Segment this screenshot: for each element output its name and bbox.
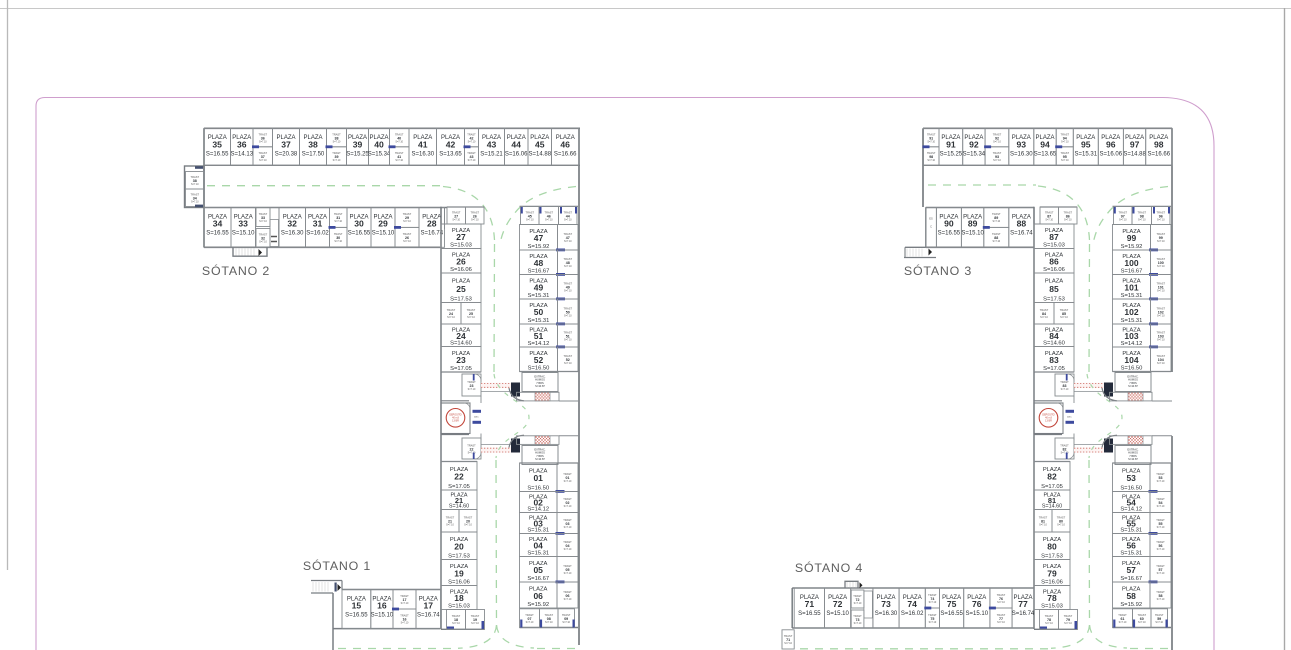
svg-text:79: 79	[1047, 568, 1057, 578]
svg-text:S=15.31: S=15.31	[1120, 551, 1142, 557]
svg-text:S=7.10: S=7.10	[1157, 572, 1165, 575]
svg-text:S=7.10: S=7.10	[1061, 451, 1069, 454]
svg-text:S=15.10: S=15.10	[961, 231, 984, 237]
svg-text:46: 46	[560, 139, 570, 149]
svg-text:S=14.12: S=14.12	[1121, 341, 1143, 347]
svg-text:72: 72	[833, 599, 843, 609]
svg-text:82: 82	[1047, 472, 1057, 482]
svg-text:36: 36	[237, 139, 247, 149]
svg-text:58: 58	[1126, 591, 1136, 601]
svg-text:S=7.10: S=7.10	[1157, 290, 1165, 293]
svg-text:S=17.05: S=17.05	[450, 366, 472, 372]
svg-text:24: 24	[456, 331, 466, 341]
svg-text:S=7.10: S=7.10	[464, 524, 472, 527]
svg-text:42: 42	[446, 139, 456, 149]
svg-text:S=17.05: S=17.05	[448, 484, 470, 490]
svg-text:S=14.60: S=14.60	[450, 341, 472, 347]
svg-text:73: 73	[881, 599, 891, 609]
svg-text:S=16.55: S=16.55	[798, 611, 821, 617]
svg-text:S=16.55: S=16.55	[345, 613, 368, 619]
svg-text:S=7.10: S=7.10	[447, 316, 455, 319]
svg-text:S=7.10: S=7.10	[992, 220, 1000, 223]
svg-text:S=7.10: S=7.10	[468, 140, 476, 143]
svg-text:04: 04	[533, 541, 543, 551]
svg-text:ASC: ASC	[1067, 416, 1072, 419]
svg-text:33: 33	[238, 219, 248, 229]
svg-text:S=7.10: S=7.10	[1157, 526, 1165, 529]
svg-text:47: 47	[534, 233, 544, 243]
svg-text:S=7.10: S=7.10	[927, 159, 935, 162]
svg-text:S=7.10: S=7.10	[564, 526, 572, 529]
svg-text:S=16.66: S=16.66	[554, 151, 577, 157]
svg-text:39: 39	[353, 139, 363, 149]
svg-text:S=16.30: S=16.30	[412, 151, 435, 157]
svg-text:S=7.10: S=7.10	[334, 240, 342, 243]
svg-text:S=7.10: S=7.10	[259, 241, 267, 244]
svg-text:S=7.10: S=7.10	[564, 265, 572, 268]
svg-text:97: 97	[1130, 139, 1140, 149]
svg-text:S=7.10: S=7.10	[993, 140, 1001, 143]
svg-text:S=7.10: S=7.10	[526, 218, 534, 221]
svg-text:S=7.10: S=7.10	[992, 240, 1000, 243]
svg-text:S=7.10: S=7.10	[564, 548, 572, 551]
svg-text:S=7.10: S=7.10	[1061, 159, 1069, 162]
svg-text:S=14.88: S=14.88	[529, 151, 552, 157]
svg-text:S=16.55: S=16.55	[940, 611, 963, 617]
svg-text:99: 99	[1127, 233, 1137, 243]
svg-text:S=7.10: S=7.10	[395, 159, 403, 162]
svg-text:S=13.65: S=13.65	[439, 151, 462, 157]
svg-text:S=10.87: S=10.87	[535, 384, 545, 388]
svg-text:S=17.53: S=17.53	[1043, 297, 1065, 303]
svg-text:S=16.55: S=16.55	[206, 231, 229, 237]
svg-text:25: 25	[456, 284, 466, 294]
svg-text:S=10.87: S=10.87	[1128, 384, 1138, 388]
svg-text:S=14.88: S=14.88	[1123, 151, 1146, 157]
svg-text:103: 103	[1124, 331, 1138, 341]
svg-text:S=7.10: S=7.10	[1157, 362, 1165, 365]
svg-text:S=15.10: S=15.10	[232, 231, 255, 237]
svg-text:S=15.03: S=15.03	[450, 243, 472, 249]
svg-text:S=15.10: S=15.10	[372, 231, 395, 237]
svg-text:51: 51	[534, 331, 544, 341]
svg-text:32: 32	[287, 219, 297, 229]
svg-text:S=7.10: S=7.10	[545, 218, 553, 221]
svg-text:S=17.53: S=17.53	[448, 554, 470, 560]
svg-text:S=17.50: S=17.50	[302, 151, 325, 157]
svg-text:15: 15	[352, 601, 362, 611]
svg-text:S=14.12: S=14.12	[527, 507, 549, 513]
svg-text:S=7.10: S=7.10	[1057, 524, 1065, 527]
svg-text:S=16.50: S=16.50	[1121, 366, 1143, 372]
svg-text:S=7.10: S=7.10	[564, 480, 572, 483]
svg-text:40: 40	[374, 139, 384, 149]
svg-text:74: 74	[907, 599, 917, 609]
svg-text:S=15.31: S=15.31	[1121, 293, 1143, 299]
svg-text:S=10.87: S=10.87	[535, 457, 545, 461]
svg-text:S=15.31: S=15.31	[1120, 528, 1142, 534]
svg-text:78: 78	[1047, 593, 1057, 603]
svg-text:31: 31	[313, 219, 323, 229]
svg-text:S=15.92: S=15.92	[527, 602, 549, 608]
svg-text:50: 50	[534, 307, 544, 317]
svg-text:27: 27	[456, 232, 466, 242]
svg-text:S=7.10: S=7.10	[526, 621, 534, 624]
svg-text:S=14.12: S=14.12	[528, 341, 550, 347]
svg-text:S=16.50: S=16.50	[527, 486, 549, 492]
svg-text:28: 28	[427, 219, 437, 229]
svg-text:S=7.10: S=7.10	[259, 220, 267, 223]
svg-text:S=15.92: S=15.92	[1121, 244, 1143, 250]
svg-text:37: 37	[281, 139, 291, 149]
svg-text:S=7.10: S=7.10	[1157, 598, 1165, 601]
svg-text:104: 104	[1124, 355, 1138, 365]
svg-text:S=7.10: S=7.10	[1157, 240, 1165, 243]
svg-text:76: 76	[972, 599, 982, 609]
svg-text:S=17.53: S=17.53	[450, 297, 472, 303]
svg-text:S=7.10: S=7.10	[471, 622, 479, 625]
svg-text:91: 91	[946, 139, 956, 149]
svg-text:S=7.10: S=7.10	[395, 140, 403, 143]
svg-text:13 BR: 13 BR	[452, 420, 459, 423]
svg-text:S=7.10: S=7.10	[334, 220, 342, 223]
svg-text:S=15.03: S=15.03	[448, 604, 470, 610]
svg-text:S=7.10: S=7.10	[993, 159, 1001, 162]
svg-text:29: 29	[378, 219, 388, 229]
svg-text:19: 19	[454, 568, 464, 578]
svg-text:S=16.06: S=16.06	[1041, 580, 1063, 586]
svg-text:S=7.10: S=7.10	[401, 602, 409, 605]
svg-text:S=16.55: S=16.55	[938, 231, 961, 237]
svg-text:S=7.10: S=7.10	[468, 451, 476, 454]
svg-text:100: 100	[1124, 258, 1138, 268]
svg-text:52: 52	[534, 355, 544, 365]
svg-text:S=7.10: S=7.10	[545, 621, 553, 624]
svg-text:S=7.10: S=7.10	[1138, 218, 1146, 221]
svg-text:S=20.38: S=20.38	[275, 151, 298, 157]
svg-text:S=7.10: S=7.10	[564, 290, 572, 293]
svg-text:57: 57	[1126, 565, 1136, 575]
svg-text:S=16.50: S=16.50	[528, 366, 550, 372]
svg-text:S=7.10: S=7.10	[452, 218, 460, 221]
svg-text:S=7.10: S=7.10	[564, 505, 572, 508]
svg-text:S=15.25: S=15.25	[346, 151, 369, 157]
svg-text:S=14.60: S=14.60	[1042, 504, 1062, 510]
svg-text:S=15.34: S=15.34	[963, 151, 986, 157]
svg-text:S=7.10: S=7.10	[1064, 218, 1072, 221]
svg-text:S=15.31: S=15.31	[1075, 151, 1098, 157]
svg-text:S=16.66: S=16.66	[1148, 151, 1171, 157]
svg-text:90: 90	[944, 219, 954, 229]
svg-text:S=16.55: S=16.55	[348, 231, 371, 237]
svg-text:S=15.03: S=15.03	[1041, 604, 1063, 610]
svg-text:S=7.10: S=7.10	[1045, 218, 1053, 221]
svg-text:S=16.30: S=16.30	[875, 611, 898, 617]
svg-text:S=16.67: S=16.67	[527, 576, 549, 582]
svg-text:89: 89	[968, 219, 978, 229]
svg-text:53: 53	[1126, 473, 1136, 483]
svg-text:SÓTANO 1: SÓTANO 1	[303, 558, 371, 573]
svg-text:83: 83	[1049, 355, 1059, 365]
svg-text:S=7.10: S=7.10	[1138, 621, 1146, 624]
svg-text:S=16.55: S=16.55	[206, 151, 229, 157]
svg-text:SÓTANO 4: SÓTANO 4	[795, 560, 863, 575]
svg-text:S=16.02: S=16.02	[306, 231, 329, 237]
svg-text:S=15.21: S=15.21	[480, 151, 503, 157]
svg-text:S=7.10: S=7.10	[1064, 622, 1072, 625]
svg-text:84: 84	[1049, 331, 1059, 341]
svg-text:SÓTANO 3: SÓTANO 3	[904, 263, 972, 278]
svg-text:23: 23	[456, 355, 466, 365]
svg-text:94: 94	[1040, 139, 1050, 149]
svg-text:S=16.50: S=16.50	[1120, 486, 1142, 492]
svg-text:S=16.06: S=16.06	[505, 151, 528, 157]
svg-text:S=7.10: S=7.10	[468, 159, 476, 162]
svg-text:95: 95	[1081, 139, 1091, 149]
svg-text:S=17.05: S=17.05	[1043, 366, 1065, 372]
svg-text:85: 85	[1049, 284, 1059, 294]
svg-text:41: 41	[418, 139, 428, 149]
svg-text:26: 26	[456, 257, 466, 267]
svg-text:S=7.10: S=7.10	[468, 388, 476, 391]
svg-text:S=7.10: S=7.10	[997, 621, 1005, 624]
svg-text:01: 01	[533, 473, 543, 483]
svg-text:S=7.10: S=7.10	[1157, 218, 1165, 221]
svg-text:S=7.10: S=7.10	[401, 622, 409, 625]
svg-text:S=7.10: S=7.10	[854, 602, 862, 605]
svg-text:S=16.74: S=16.74	[1010, 231, 1033, 237]
svg-text:93: 93	[1017, 139, 1027, 149]
svg-text:S=15.10: S=15.10	[826, 611, 849, 617]
svg-text:77: 77	[1018, 599, 1028, 609]
svg-text:S=7.10: S=7.10	[452, 622, 460, 625]
svg-text:ASC: ASC	[474, 416, 479, 419]
svg-text:S=15.92: S=15.92	[528, 244, 550, 250]
svg-text:18: 18	[454, 593, 464, 603]
svg-text:S=15.31: S=15.31	[528, 293, 550, 299]
svg-text:30: 30	[354, 219, 364, 229]
svg-text:S=16.06: S=16.06	[1043, 267, 1065, 273]
svg-text:S=7.10: S=7.10	[1157, 548, 1165, 551]
svg-text:86: 86	[1049, 257, 1059, 267]
svg-text:S=10.87: S=10.87	[1128, 457, 1138, 461]
svg-text:38: 38	[308, 139, 318, 149]
svg-text:17: 17	[424, 601, 434, 611]
svg-text:S=16.06: S=16.06	[1100, 151, 1123, 157]
svg-text:101: 101	[1124, 283, 1138, 293]
svg-text:S=15.34: S=15.34	[368, 151, 391, 157]
svg-text:S=7.10: S=7.10	[191, 183, 199, 186]
svg-text:S=7.10: S=7.10	[1157, 505, 1165, 508]
svg-text:S=15.25: S=15.25	[940, 151, 963, 157]
svg-text:S=16.74: S=16.74	[417, 613, 440, 619]
svg-text:S=15.10: S=15.10	[371, 613, 394, 619]
svg-text:20: 20	[454, 542, 464, 552]
svg-text:S=15.31: S=15.31	[527, 528, 549, 534]
svg-text:S=7.10: S=7.10	[784, 642, 792, 645]
svg-text:S=7.10: S=7.10	[471, 218, 479, 221]
svg-text:S=16.02: S=16.02	[901, 611, 924, 617]
svg-text:S=7.10: S=7.10	[1157, 480, 1165, 483]
svg-text:S=16.06: S=16.06	[450, 267, 472, 273]
svg-text:S=14.60: S=14.60	[449, 504, 469, 510]
svg-text:S=17.05: S=17.05	[1041, 484, 1063, 490]
svg-text:S=7.10: S=7.10	[564, 598, 572, 601]
svg-text:S=7.10: S=7.10	[1061, 140, 1069, 143]
svg-text:S=14.60: S=14.60	[1043, 341, 1065, 347]
svg-text:102: 102	[1124, 307, 1138, 317]
svg-text:56: 56	[1126, 541, 1136, 551]
svg-text:S=14.12: S=14.12	[1120, 507, 1142, 513]
svg-text:S=15.03: S=15.03	[1043, 243, 1065, 249]
svg-text:S=7.10: S=7.10	[1040, 316, 1048, 319]
svg-text:S=7.10: S=7.10	[564, 338, 572, 341]
svg-text:96: 96	[1106, 139, 1116, 149]
svg-text:S=7.10: S=7.10	[467, 316, 475, 319]
svg-text:SÓTANO 2: SÓTANO 2	[202, 263, 270, 278]
svg-text:S=7.10: S=7.10	[259, 140, 267, 143]
svg-text:98: 98	[1154, 139, 1164, 149]
svg-text:S=16.06: S=16.06	[448, 580, 470, 586]
svg-text:13 BR: 13 BR	[1045, 420, 1052, 423]
svg-text:48: 48	[534, 258, 544, 268]
svg-text:75: 75	[947, 599, 957, 609]
svg-text:80: 80	[1047, 542, 1057, 552]
svg-text:S=15.10: S=15.10	[966, 611, 989, 617]
svg-text:S=7.10: S=7.10	[1119, 218, 1127, 221]
svg-text:71: 71	[805, 599, 815, 609]
svg-text:34: 34	[213, 219, 223, 229]
svg-text:43: 43	[487, 139, 497, 149]
svg-text:S=14.13: S=14.13	[231, 151, 254, 157]
svg-text:S=7.10: S=7.10	[403, 220, 411, 223]
svg-text:S=7.10: S=7.10	[927, 140, 935, 143]
svg-text:88: 88	[1017, 219, 1027, 229]
svg-text:S=7.10: S=7.10	[446, 524, 454, 527]
svg-text:S=16.74: S=16.74	[1012, 611, 1035, 617]
svg-text:S=7.10: S=7.10	[1157, 338, 1165, 341]
svg-text:ES: ES	[929, 217, 933, 221]
svg-text:35: 35	[212, 139, 222, 149]
svg-text:S=7.10: S=7.10	[564, 362, 572, 365]
svg-text:S=7.10: S=7.10	[854, 622, 862, 625]
svg-text:S=7.10: S=7.10	[259, 159, 267, 162]
svg-text:S=17.53: S=17.53	[1041, 554, 1063, 560]
svg-text:S=15.31: S=15.31	[527, 551, 549, 557]
svg-text:S=7.10: S=7.10	[564, 240, 572, 243]
svg-text:S=7.10: S=7.10	[564, 314, 572, 317]
svg-text:S=16.67: S=16.67	[1120, 576, 1142, 582]
svg-text:S=7.10: S=7.10	[1039, 524, 1047, 527]
svg-text:S=15.31: S=15.31	[1121, 318, 1143, 324]
svg-text:44: 44	[511, 139, 521, 149]
svg-text:45: 45	[535, 139, 545, 149]
svg-text:S=7.10: S=7.10	[1157, 314, 1165, 317]
svg-text:22: 22	[454, 472, 464, 482]
svg-text:S=16.67: S=16.67	[1121, 269, 1143, 275]
svg-text:C: C	[930, 225, 932, 229]
svg-text:S=7.10: S=7.10	[1045, 622, 1053, 625]
svg-text:S=16.30: S=16.30	[1010, 151, 1033, 157]
svg-text:06: 06	[533, 591, 543, 601]
svg-text:S=7.10: S=7.10	[929, 621, 937, 624]
svg-text:S=13.65: S=13.65	[1034, 151, 1057, 157]
svg-text:S=7.10: S=7.10	[564, 218, 572, 221]
svg-text:S=7.10: S=7.10	[1060, 316, 1068, 319]
svg-text:S=7.10: S=7.10	[564, 572, 572, 575]
svg-text:S=7.10: S=7.10	[333, 159, 341, 162]
svg-text:S=15.31: S=15.31	[528, 318, 550, 324]
svg-text:05: 05	[533, 565, 543, 575]
svg-text:S=7.10: S=7.10	[1157, 265, 1165, 268]
svg-text:S=16.30: S=16.30	[281, 231, 304, 237]
svg-text:S=7.10: S=7.10	[1119, 621, 1127, 624]
svg-text:16: 16	[377, 601, 387, 611]
svg-text:S=7.10: S=7.10	[997, 601, 1005, 604]
svg-text:S=16.67: S=16.67	[528, 269, 550, 275]
svg-text:S=7.10: S=7.10	[1155, 621, 1163, 624]
svg-text:49: 49	[534, 283, 544, 293]
svg-text:S=15.92: S=15.92	[1120, 602, 1142, 608]
svg-text:S=7.10: S=7.10	[929, 601, 937, 604]
svg-text:S=7.10: S=7.10	[333, 140, 341, 143]
svg-text:S=7.10: S=7.10	[403, 240, 411, 243]
svg-text:87: 87	[1049, 232, 1059, 242]
svg-text:S=7.10: S=7.10	[562, 621, 570, 624]
svg-text:S=7.10: S=7.10	[191, 201, 199, 204]
svg-text:92: 92	[969, 139, 979, 149]
svg-text:S=7.10: S=7.10	[1061, 388, 1069, 391]
